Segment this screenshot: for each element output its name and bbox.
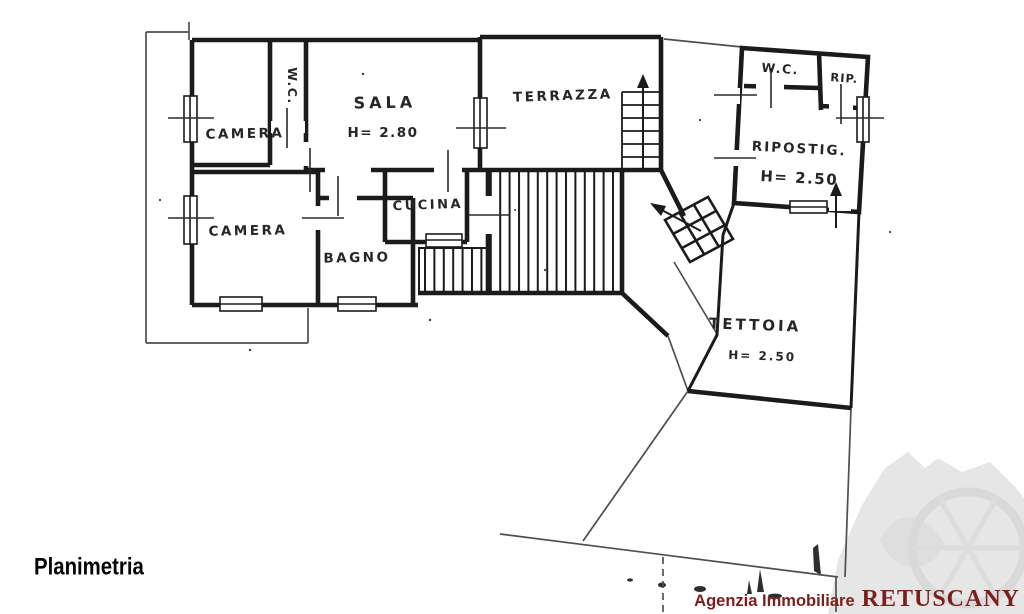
area-note-tettoia-height: H= 2.50 (728, 348, 796, 364)
room-note-ripostiglio-height: H= 2.50 (760, 167, 839, 189)
room-label-terrazza: TERRAZZA (513, 86, 613, 105)
floor-plan-drawing: CAMERA W.C. SALA H= 2.80 TERRAZZA CUCINA… (0, 0, 1024, 614)
room-label-wc-annex: W.C. (761, 60, 799, 78)
agency-prefix: Agenzia Immobiliare (694, 592, 854, 611)
agency-watermark-text: Agenzia Immobiliare RETUSCANY (694, 586, 1020, 613)
room-label-bagno: BAGNO (323, 249, 390, 266)
room-label-ripostiglio: RIPOSTIG. (751, 139, 847, 160)
room-label-sala: SALA (354, 92, 417, 112)
room-note-sala-height: H= 2.80 (347, 125, 418, 141)
room-label-cucina: CUCINA (392, 197, 463, 214)
room-label-camera-bottom: CAMERA (208, 222, 287, 239)
room-label-camera-top: CAMERA (205, 125, 284, 142)
ramp-hatching (419, 171, 621, 292)
agency-name: RETUSCANY (862, 586, 1020, 613)
room-label-rip: RIP. (830, 70, 859, 86)
page-title: Planimetria (34, 554, 144, 581)
terrace-staircase (622, 92, 659, 170)
area-label-tettoia: TETTOIA (709, 314, 802, 335)
floor-plan-scan: CAMERA W.C. SALA H= 2.80 TERRAZZA CUCINA… (0, 0, 1024, 614)
tettoia-outline (688, 203, 859, 408)
room-label-wc-main: W.C. (285, 67, 300, 104)
fan-steps-arrow (650, 203, 701, 231)
